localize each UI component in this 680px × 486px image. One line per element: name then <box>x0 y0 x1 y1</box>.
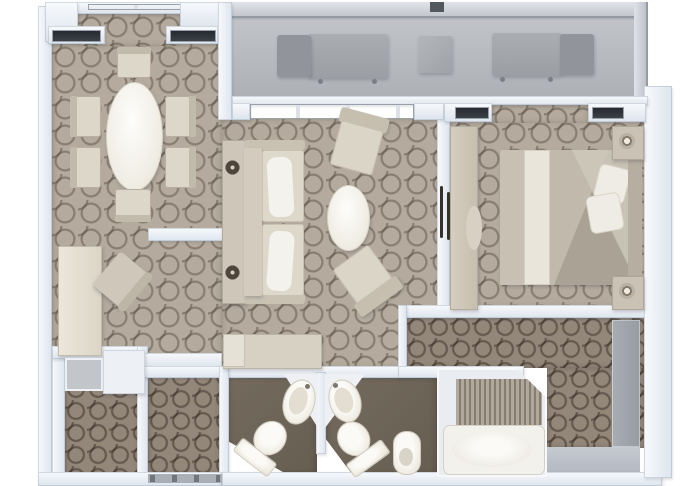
slatted-mat <box>456 379 542 425</box>
master-bath-faucet <box>333 383 338 388</box>
tv-cabinet-left-section <box>223 334 245 367</box>
closet-sliding-doors <box>612 320 640 447</box>
dining-chair-left-2 <box>70 147 101 188</box>
lounger-left-leg <box>318 79 323 84</box>
bathtub <box>443 425 545 475</box>
nightstand-bottom-lamp <box>619 283 635 299</box>
bedroom-bay-alcove-carpet <box>492 105 588 123</box>
balcony-rail-right <box>634 2 648 97</box>
desk <box>58 246 102 356</box>
wall-left-outer <box>38 6 52 476</box>
nightstand-top-lamp <box>619 133 635 149</box>
wall-door-chunk-left <box>232 103 250 120</box>
closet-shelf-unit <box>65 358 103 391</box>
vanity-stool <box>466 206 482 250</box>
tub-room <box>437 368 547 477</box>
floor-plan <box>0 0 680 486</box>
dining-chair-top <box>117 47 151 78</box>
bed-runner <box>524 150 550 285</box>
wall-right-outer <box>644 86 672 478</box>
bathtub-basin <box>452 431 532 467</box>
dining-window-glass-left <box>52 30 101 42</box>
balcony-divider <box>430 2 444 12</box>
landing-floor <box>547 447 640 474</box>
dining-chair-right-1 <box>165 96 196 137</box>
entry-door-threshold-ticks <box>150 475 220 482</box>
wall-bay-right <box>180 2 222 28</box>
sofa-pillow-2 <box>265 229 296 293</box>
dining-table <box>106 82 163 191</box>
lounger-right-back-cushion <box>560 34 594 75</box>
lounger-left-back-cushion <box>277 35 311 77</box>
hallway-carpet <box>148 366 220 474</box>
coffee-table <box>327 185 370 251</box>
master-bath-sink-basin <box>331 385 356 415</box>
guest-bath-sink-basin <box>286 385 311 417</box>
balcony-side-table <box>418 36 452 73</box>
guest-bath-faucet <box>305 384 310 389</box>
corridor-carpet <box>406 316 645 368</box>
bedroom-door-handle-1 <box>440 186 443 238</box>
sofa-pillow-1 <box>265 155 295 218</box>
wall-dining-balcony <box>218 2 232 120</box>
dining-chair-right-2 <box>165 147 196 188</box>
dining-window-glass-right <box>170 30 216 42</box>
wall-door-chunk-mid <box>414 103 444 120</box>
lounger-right-leg <box>548 77 553 82</box>
armchair-top-seat <box>330 120 384 176</box>
bedroom-window-glass-left <box>455 107 489 119</box>
bidet-basin <box>399 448 413 466</box>
console-lamp-bottom <box>225 265 240 280</box>
lounger-right-body <box>492 33 562 76</box>
console-lamp-top <box>225 160 240 175</box>
bedroom-door-handle-2 <box>447 192 450 240</box>
lounger-left-leg <box>372 79 377 84</box>
bidet <box>393 431 421 475</box>
lounger-right-leg <box>500 77 505 82</box>
wall-closet-left <box>52 346 65 478</box>
wall-stub-dining <box>148 228 232 241</box>
lounger-left-body <box>308 34 388 78</box>
closet-cabinet <box>103 350 145 394</box>
sofa-back <box>244 148 262 296</box>
living-sliding-door-glass <box>250 104 414 119</box>
bed <box>500 150 642 285</box>
bedroom-window-glass-right <box>592 107 624 119</box>
bed-pillow-2 <box>585 191 625 234</box>
wall-bedroom-bottom <box>398 305 648 318</box>
dining-chair-bottom <box>115 189 151 222</box>
dining-chair-left-1 <box>70 96 101 137</box>
wall-stub-hall <box>143 353 222 367</box>
bed-headboard <box>628 150 642 285</box>
wall-guest-bath-left <box>219 366 229 476</box>
